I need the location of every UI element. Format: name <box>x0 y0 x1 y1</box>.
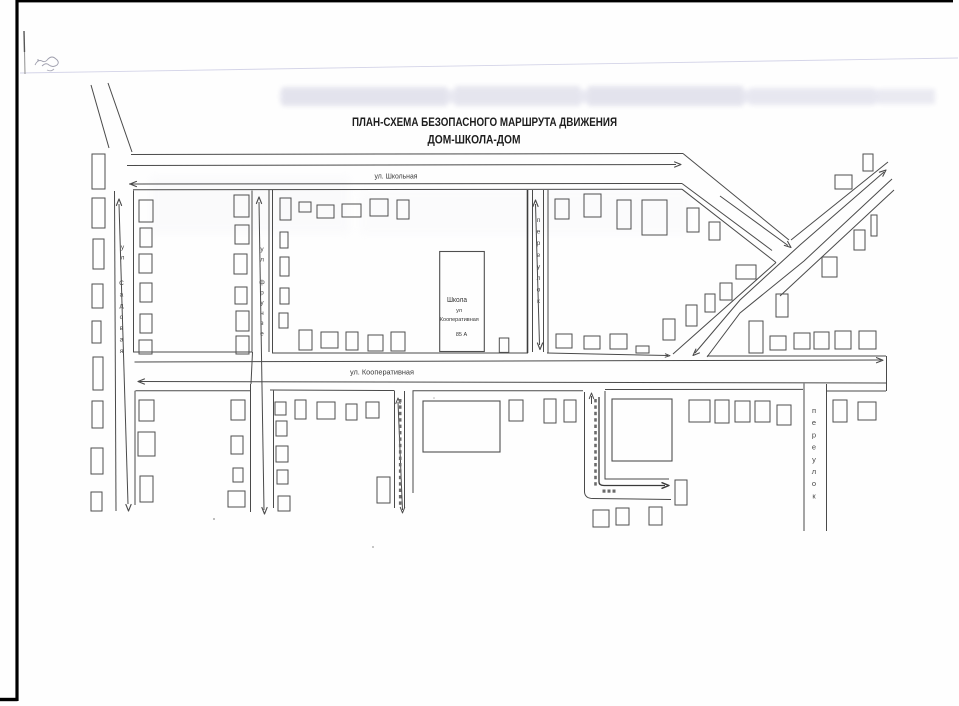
svg-text:ул. Школьная: ул. Школьная <box>375 174 418 181</box>
svg-text:к: к <box>537 298 540 305</box>
svg-text:о: о <box>812 479 816 488</box>
svg-text:е: е <box>812 443 816 452</box>
svg-text:о: о <box>120 314 124 321</box>
svg-text:р: р <box>812 430 816 439</box>
svg-text:л: л <box>812 467 816 476</box>
svg-text:а: а <box>120 337 124 344</box>
svg-text:л: л <box>121 255 125 262</box>
svg-text:ул. Кооперативная: ул. Кооперативная <box>350 368 414 377</box>
svg-text:п: п <box>812 406 816 415</box>
svg-text:ДОМ-ШКОЛА-ДОМ: ДОМ-ШКОЛА-ДОМ <box>428 133 521 147</box>
svg-text:е: е <box>812 418 816 427</box>
svg-text:ф: ф <box>259 279 265 286</box>
svg-text:Кооперативная: Кооперативная <box>440 317 479 323</box>
svg-text:С: С <box>119 280 124 287</box>
svg-text:п: п <box>537 217 541 224</box>
svg-text:в: в <box>120 325 124 332</box>
svg-text:е: е <box>537 252 541 259</box>
svg-text:о: о <box>537 287 541 294</box>
svg-text:ПЛАН-СХЕМА БЕЗОПАСНОГО МАРШРУТ: ПЛАН-СХЕМА БЕЗОПАСНОГО МАРШРУТА ДВИЖЕНИЯ <box>352 115 617 129</box>
svg-text:р: р <box>537 240 541 247</box>
svg-text:н: н <box>260 310 264 317</box>
svg-text:л: л <box>537 275 541 282</box>
svg-text:д: д <box>120 303 124 310</box>
svg-text:ул: ул <box>456 308 462 314</box>
svg-text:а: а <box>120 291 124 298</box>
svg-text:л: л <box>260 257 264 264</box>
svg-text:р: р <box>260 289 264 296</box>
svg-text:Школа: Школа <box>447 297 467 304</box>
svg-text:е: е <box>537 229 541 236</box>
svg-text:я: я <box>120 348 124 355</box>
svg-text:е: е <box>260 331 264 338</box>
svg-text:з: з <box>260 320 263 327</box>
svg-text:85 А: 85 А <box>456 332 468 338</box>
svg-text:у: у <box>812 455 816 464</box>
